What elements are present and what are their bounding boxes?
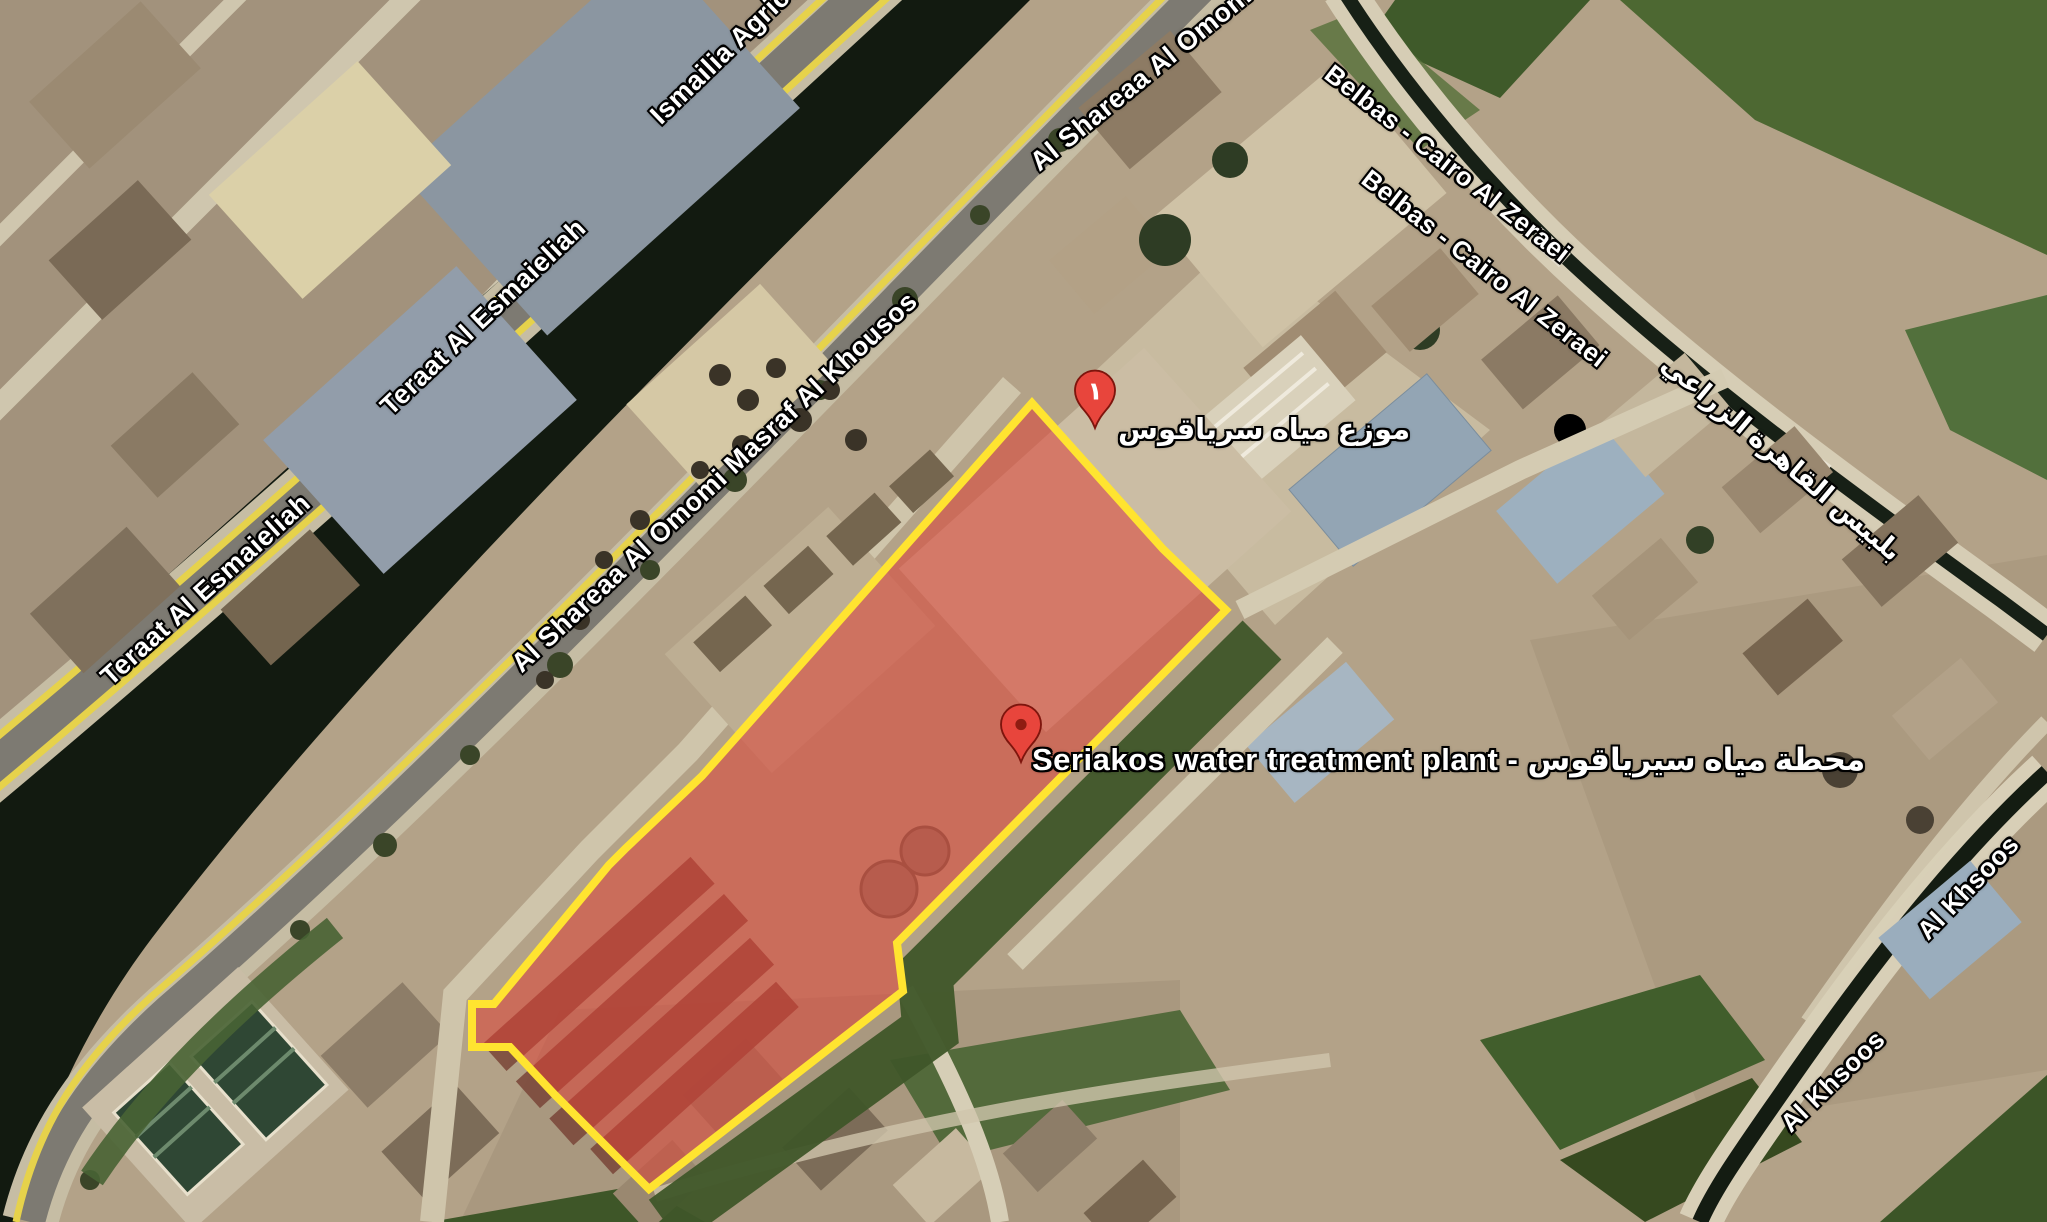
place-label-treatment-plant[interactable]: Seriakos water treatment plant - محطة مي… [1032,742,1865,778]
pin-number: ١ [1087,377,1102,405]
map-canvas[interactable]: ١ Ismailia Agricul Teraat Al Esmaieliah … [0,0,2047,1222]
pin-dot [1015,719,1026,730]
place-label-water-distributor[interactable]: موزع مياه سرياقوس [1118,412,1410,447]
satellite-imagery: ١ [0,0,2047,1222]
